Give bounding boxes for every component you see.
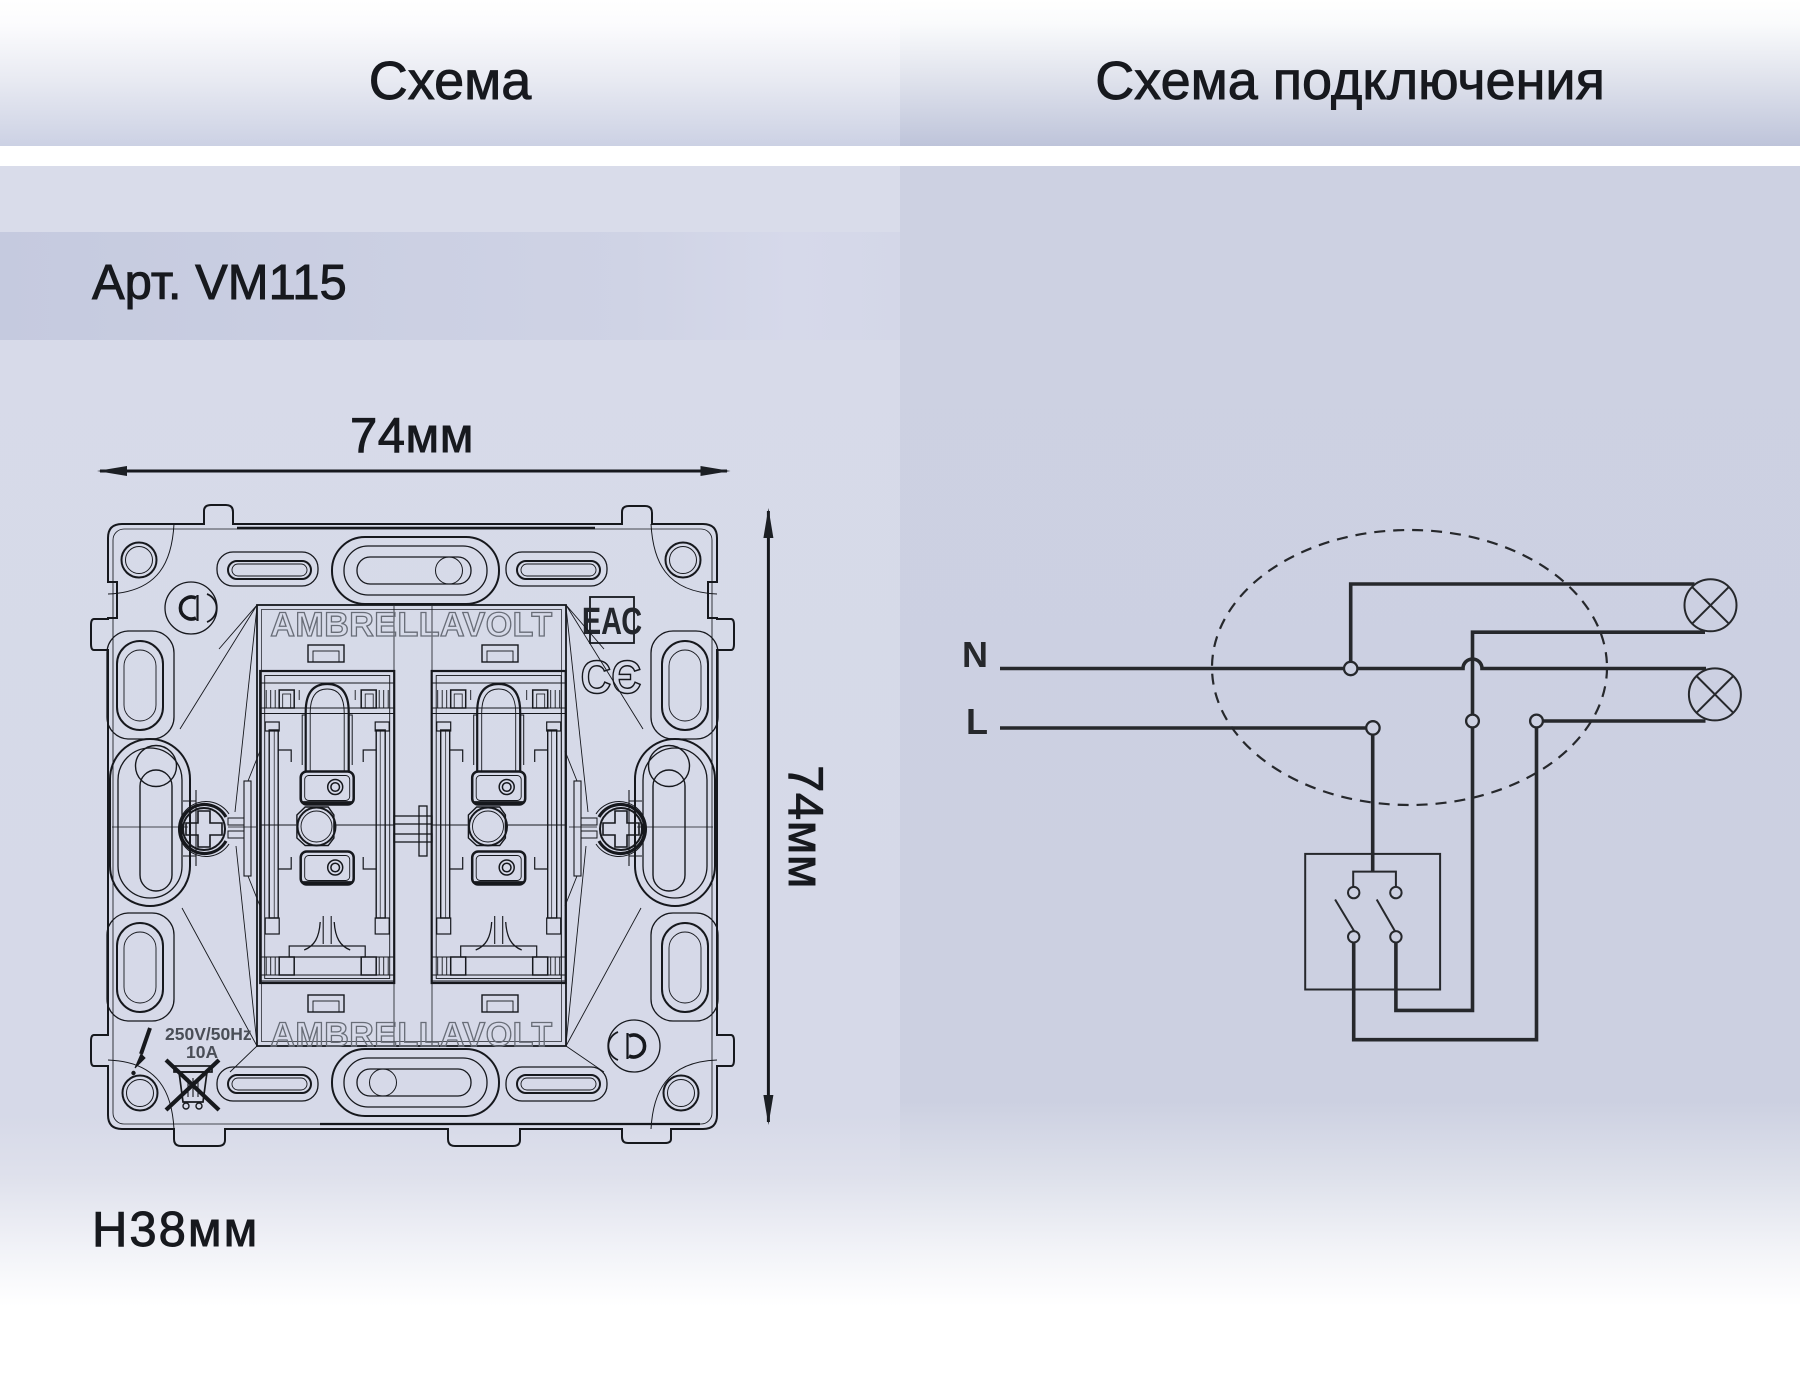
- svg-text:H38мм: H38мм: [92, 1203, 259, 1257]
- svg-text:74мм: 74мм: [350, 409, 474, 463]
- svg-text:AMBRELLAVOLT: AMBRELLAVOLT: [270, 1016, 552, 1054]
- svg-text:74мм: 74мм: [778, 765, 832, 889]
- svg-text:250V/50Hz: 250V/50Hz: [165, 1024, 252, 1044]
- svg-text:ЕАС: ЕАС: [582, 600, 642, 643]
- svg-text:10A: 10A: [186, 1042, 218, 1062]
- svg-text:L: L: [966, 701, 988, 742]
- svg-text:N: N: [962, 634, 988, 675]
- svg-text:AMBRELLAVOLT: AMBRELLAVOLT: [270, 606, 552, 644]
